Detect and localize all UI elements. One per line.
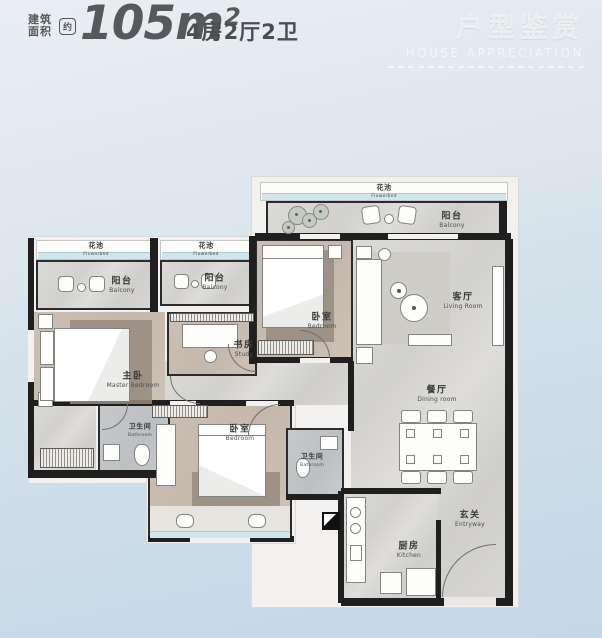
- watermark-subtitle: HOUSE APPRECIATION: [388, 46, 584, 60]
- pillow-icon: [262, 245, 324, 259]
- master-bedroom-label: 主卧Master Bedroom: [102, 369, 164, 390]
- dining-chair: [427, 471, 447, 484]
- pillow-icon: [40, 331, 54, 365]
- kitchen-sink-icon: [350, 545, 362, 561]
- bedroom-label: 卧室Bedroom: [223, 422, 257, 443]
- dining-chair: [453, 471, 473, 484]
- sofa: [356, 259, 382, 345]
- master-bed: [54, 328, 130, 402]
- sink-icon: [320, 436, 338, 450]
- layout-summary: 4房2厅2卫: [186, 16, 299, 46]
- fridge-icon: [406, 568, 436, 596]
- wall-top-right-wing: [255, 233, 511, 240]
- floorplan-poster: 建筑 面积 约 105m2 4房2厅2卫 户型鉴赏 HOUSE APPRECIA…: [0, 0, 602, 638]
- bedroom-bottom-bed: [198, 435, 266, 497]
- kitchen-label: 厨房Kitchen: [395, 539, 423, 560]
- study-label: 书房Study: [233, 338, 255, 359]
- balcony-label: 阳台Balcony: [200, 271, 230, 292]
- coffee-table-icon: [400, 294, 428, 322]
- place-setting-icon: [433, 429, 442, 438]
- duct-shaft-icon: [322, 512, 340, 530]
- wall-right-outer: [505, 239, 513, 604]
- balcony-table-icon: [77, 283, 86, 292]
- wall-balcony-pillar: [150, 238, 158, 312]
- door-gap-bedroom-top: [300, 358, 330, 363]
- study-chair: [204, 350, 217, 363]
- place-setting-icon: [406, 455, 415, 464]
- stool-icon: [378, 248, 391, 261]
- balcony-chair: [397, 205, 417, 225]
- bedroom-bottom-terrace: [150, 506, 290, 534]
- plant-icon: [282, 221, 295, 234]
- pillow-icon: [40, 367, 54, 401]
- flowerbed-label: 花池Flowerbed: [367, 183, 401, 200]
- flowerbed-label: 花池Flowerbed: [79, 241, 113, 258]
- place-setting-icon: [406, 429, 415, 438]
- watermark: 户型鉴赏 HOUSE APPRECIATION: [388, 6, 584, 68]
- sliding-door-living: [388, 234, 458, 239]
- bedroom-bottom-window-strip: [150, 531, 290, 538]
- wall-balcony-right-pillar: [499, 201, 507, 237]
- place-setting-icon: [460, 455, 469, 464]
- toilet-icon: [134, 444, 150, 466]
- tv-cabinet: [492, 266, 504, 346]
- watermark-title: 户型鉴赏: [388, 6, 584, 45]
- window-master: [28, 330, 34, 382]
- study-shelf: [170, 313, 254, 322]
- place-setting-icon: [433, 455, 442, 464]
- plant-icon: [313, 204, 329, 220]
- approx-badge: 约: [59, 18, 76, 35]
- entry-door-opening: [444, 597, 496, 606]
- wall-kitchen-left: [338, 491, 344, 603]
- dining-room-label: 餐厅Dining room: [414, 383, 460, 404]
- coffee-table-icon: [390, 282, 407, 299]
- window-bedroom-top: [300, 234, 340, 239]
- balcony-table-icon: [384, 214, 394, 224]
- balcony-label: 阳台Balcony: [437, 209, 467, 230]
- side-table-icon: [356, 246, 372, 259]
- stove-burner-icon: [350, 523, 361, 534]
- master-closet: [40, 448, 94, 468]
- bench-icon: [408, 334, 452, 346]
- dining-chair: [427, 410, 447, 423]
- bathroom-label: 卫生间Bathroom: [296, 452, 328, 469]
- wall-dining-hall: [348, 361, 354, 431]
- dining-chair: [401, 410, 421, 423]
- balcony-chair: [58, 276, 74, 292]
- nightstand-icon: [38, 314, 53, 329]
- kitchen-appliance-icon: [380, 572, 402, 594]
- living-room-label: 客厅Living Room: [440, 290, 486, 311]
- watermark-divider: [388, 66, 584, 68]
- balcony-chair: [174, 274, 189, 289]
- wall-kitchen-entry: [436, 520, 441, 600]
- entryway-label: 玄关Entryway: [452, 508, 487, 529]
- wardrobe-icon: [156, 424, 176, 486]
- balcony-chair: [361, 205, 381, 225]
- place-setting-icon: [460, 429, 469, 438]
- dining-chair: [401, 471, 421, 484]
- slippers-icon: [248, 514, 266, 528]
- bedroom-bottom-closet: [152, 405, 208, 418]
- balcony-label: 阳台Balcony: [107, 274, 137, 295]
- area-caption: 建筑 面积: [28, 14, 52, 38]
- slippers-icon: [176, 514, 194, 528]
- nightstand-icon: [328, 245, 342, 259]
- dining-chair: [453, 410, 473, 423]
- stove-burner-icon: [350, 507, 361, 518]
- wall-bottom-left: [28, 470, 172, 478]
- balcony-chair: [89, 276, 105, 292]
- balcony-table-icon: [191, 280, 199, 288]
- bedroom-label: 卧室Bedroom: [305, 310, 339, 331]
- bathroom-label: 卫生间Bathroom: [124, 422, 156, 439]
- wall-kitchen-top: [341, 488, 441, 494]
- wall-bath2-bottom: [286, 494, 344, 500]
- side-table-icon: [356, 347, 373, 364]
- sink-icon: [103, 444, 120, 461]
- flowerbed-label: 花池Flowerbed: [189, 241, 223, 258]
